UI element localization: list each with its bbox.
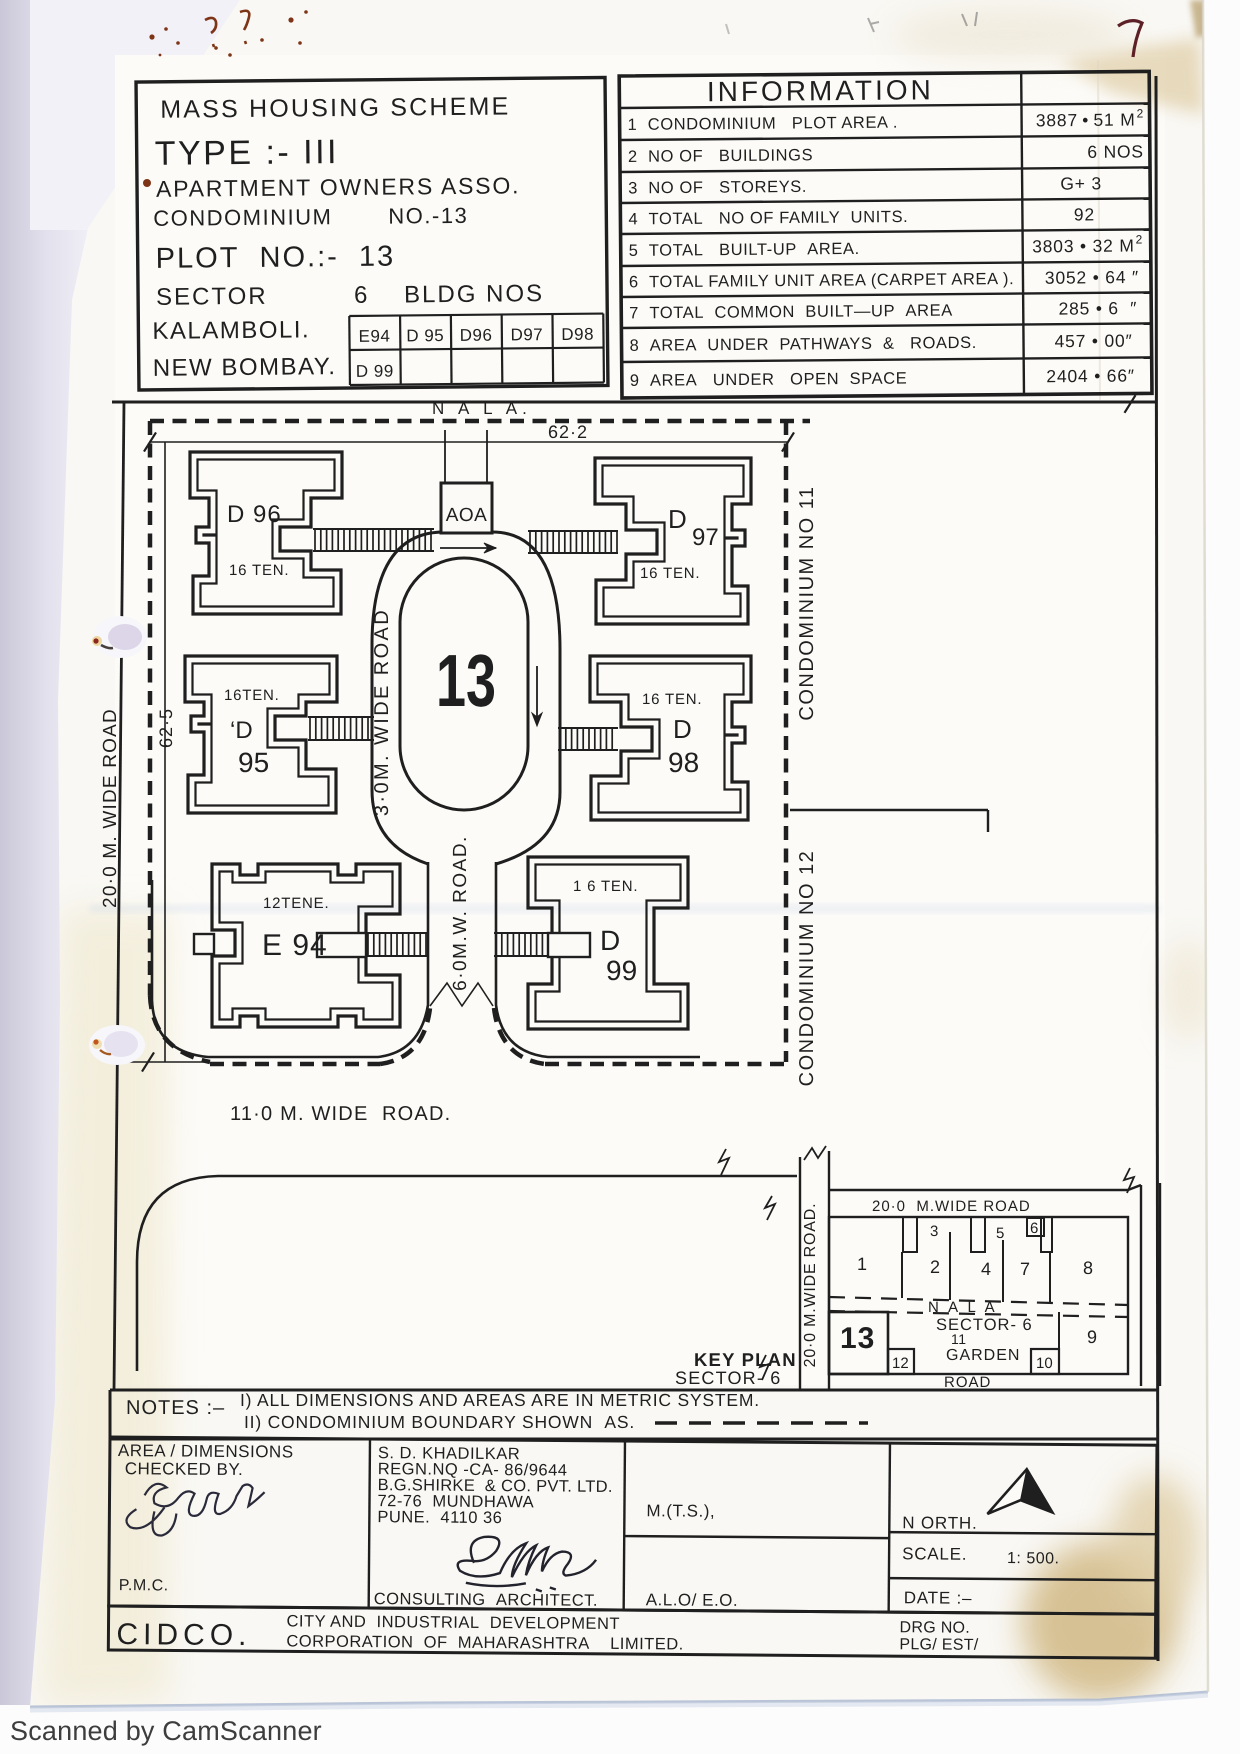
svg-text:D: D bbox=[673, 714, 692, 744]
svg-text:GARDEN: GARDEN bbox=[946, 1347, 1020, 1364]
svg-text:CIDCO.: CIDCO. bbox=[116, 1618, 251, 1652]
svg-text:SCALE.: SCALE. bbox=[902, 1544, 967, 1564]
svg-text:D 95: D 95 bbox=[406, 326, 444, 345]
svg-text:285 • 6 ″: 285 • 6 ″ bbox=[1058, 298, 1137, 319]
svg-text:KEY PLAN: KEY PLAN bbox=[694, 1349, 797, 1370]
svg-text:E 94: E 94 bbox=[262, 929, 328, 962]
svg-text:2404 • 66″: 2404 • 66″ bbox=[1046, 366, 1135, 387]
svg-text:CITY AND INDUSTRIAL DEVELOPM: CITY AND INDUSTRIAL DEVELOPMENT bbox=[286, 1612, 620, 1633]
svg-text:3 NO OF STOREYS.: 3 NO OF STOREYS. bbox=[628, 178, 807, 198]
svg-text:D97: D97 bbox=[510, 325, 543, 344]
svg-text:DATE :–: DATE :– bbox=[904, 1588, 973, 1608]
svg-text:PLG/ EST/: PLG/ EST/ bbox=[899, 1636, 979, 1654]
svg-text:N A L A.: N A L A. bbox=[432, 399, 532, 418]
svg-text:20·0 M.WIDE ROAD: 20·0 M.WIDE ROAD bbox=[872, 1198, 1031, 1215]
svg-text:D 96: D 96 bbox=[227, 501, 282, 528]
svg-text:AOA: AOA bbox=[446, 505, 488, 526]
svg-text:8 AREA UNDER PATHWAYS &: 8 AREA UNDER PATHWAYS & ROADS. bbox=[629, 334, 977, 355]
svg-text:CORPORATION OF MAHARASHTRA: CORPORATION OF MAHARASHTRA LIMITED. bbox=[286, 1632, 684, 1653]
svg-text:92: 92 bbox=[1074, 204, 1095, 224]
svg-text:8: 8 bbox=[1083, 1258, 1093, 1278]
svg-text:3803 • 32 M: 3803 • 32 M bbox=[1032, 236, 1135, 257]
svg-text:16TEN.: 16TEN. bbox=[224, 687, 280, 704]
svg-text:6 TOTAL FAMILY UNIT AREA (CAR: 6 TOTAL FAMILY UNIT AREA (CARPET AREA ). bbox=[629, 270, 1014, 291]
svg-text:20·0 M.WIDE ROAD.: 20·0 M.WIDE ROAD. bbox=[802, 1203, 819, 1368]
svg-text:1: 500.: 1: 500. bbox=[1007, 1550, 1060, 1567]
svg-text:6: 6 bbox=[1030, 1220, 1038, 1237]
svg-text:5: 5 bbox=[996, 1225, 1004, 1242]
svg-text:7: 7 bbox=[1020, 1259, 1030, 1279]
svg-text:4 TOTAL NO OF FAMILY UNITS: 4 TOTAL NO OF FAMILY UNITS. bbox=[628, 208, 908, 228]
svg-text:PUNE. 4110 36: PUNE. 4110 36 bbox=[377, 1508, 502, 1527]
svg-text:3887 • 51 M: 3887 • 51 M bbox=[1036, 110, 1136, 131]
svg-text:KALAMBOLI.: KALAMBOLI. bbox=[152, 316, 310, 345]
svg-text:D96: D96 bbox=[460, 326, 493, 345]
svg-text:3052 • 64 ″: 3052 • 64 ″ bbox=[1045, 267, 1139, 288]
svg-text:2: 2 bbox=[1136, 232, 1143, 246]
svg-text:D: D bbox=[600, 925, 620, 956]
svg-text:62·2: 62·2 bbox=[548, 422, 588, 442]
svg-text:1 6 TEN.: 1 6 TEN. bbox=[573, 878, 638, 895]
svg-text:6 NOS: 6 NOS bbox=[1087, 141, 1144, 161]
svg-text:MASS HOUSING SCHEME: MASS HOUSING SCHEME bbox=[160, 92, 510, 123]
svg-text:‘D: ‘D bbox=[230, 717, 253, 744]
svg-text:12: 12 bbox=[892, 1355, 909, 1372]
svg-text:9: 9 bbox=[1087, 1327, 1097, 1347]
svg-text:11: 11 bbox=[951, 1331, 967, 1347]
svg-text:CONDOMINIUM: CONDOMINIUM bbox=[153, 204, 332, 231]
svg-text:E94: E94 bbox=[359, 327, 391, 346]
svg-text:DRG NO.: DRG NO. bbox=[899, 1619, 970, 1637]
svg-text:16 TEN.: 16 TEN. bbox=[229, 562, 289, 579]
svg-text:Scanned by CamScanner: Scanned by CamScanner bbox=[10, 1716, 322, 1746]
svg-text:A.L.O/ E.O.: A.L.O/ E.O. bbox=[646, 1590, 739, 1610]
svg-text:3·0M. WIDE ROAD: 3·0M. WIDE ROAD bbox=[371, 608, 393, 816]
svg-text:10: 10 bbox=[1036, 1355, 1053, 1372]
svg-text:APARTMENT OWNERS ASSO.: APARTMENT OWNERS ASSO. bbox=[156, 172, 520, 201]
svg-text:13: 13 bbox=[840, 1322, 875, 1355]
svg-text:CONDOMINIUM NO 12: CONDOMINIUM NO 12 bbox=[796, 850, 818, 1087]
svg-text:BLDG NOS: BLDG NOS bbox=[404, 280, 544, 308]
svg-text:D 99: D 99 bbox=[356, 362, 394, 381]
svg-text:16 TEN.: 16 TEN. bbox=[642, 691, 702, 708]
svg-text:CHECKED BY.: CHECKED BY. bbox=[125, 1459, 244, 1479]
svg-text:457 • 00″: 457 • 00″ bbox=[1055, 331, 1133, 352]
svg-text:CONDOMINIUM NO 11: CONDOMINIUM NO 11 bbox=[796, 485, 818, 720]
svg-text:PLOT NO.:- 13: PLOT NO.:- 13 bbox=[156, 241, 396, 275]
svg-text:NEW BOMBAY.: NEW BOMBAY. bbox=[153, 353, 337, 382]
svg-text:N ORTH.: N ORTH. bbox=[902, 1513, 977, 1533]
svg-text:62·5: 62·5 bbox=[156, 708, 176, 748]
svg-text:6: 6 bbox=[354, 282, 370, 309]
svg-text:12TENE.: 12TENE. bbox=[263, 895, 329, 912]
svg-text:5 TOTAL BUILT-UP AREA.: 5 TOTAL BUILT-UP AREA. bbox=[629, 240, 860, 260]
svg-text:7 TOTAL COMMON BUILT—UP AR: 7 TOTAL COMMON BUILT—UP AREA bbox=[629, 302, 953, 323]
svg-text:M.(T.S.),: M.(T.S.), bbox=[646, 1501, 715, 1521]
svg-text:ROAD: ROAD bbox=[944, 1374, 991, 1391]
svg-text:98: 98 bbox=[668, 747, 699, 778]
svg-text:20·0 M. WIDE ROAD: 20·0 M. WIDE ROAD bbox=[100, 708, 121, 908]
svg-text:9 AREA UNDER OPEN SPACE: 9 AREA UNDER OPEN SPACE bbox=[630, 370, 908, 390]
svg-text:2: 2 bbox=[1136, 106, 1143, 120]
svg-text:N A L A: N A L A bbox=[928, 1299, 998, 1316]
svg-text:99: 99 bbox=[606, 955, 637, 986]
svg-text:2 NO OF BUILDINGS: 2 NO OF BUILDINGS bbox=[628, 146, 813, 166]
svg-text:97: 97 bbox=[692, 524, 719, 551]
svg-text:13: 13 bbox=[436, 639, 496, 722]
svg-text:SECTOR: SECTOR bbox=[156, 283, 268, 311]
svg-text:1 CONDOMINIUM PLOT AREA .: 1 CONDOMINIUM PLOT AREA . bbox=[628, 114, 899, 134]
svg-text:D98: D98 bbox=[561, 325, 594, 344]
svg-text:2: 2 bbox=[930, 1257, 940, 1277]
svg-text:1: 1 bbox=[857, 1254, 867, 1274]
svg-text:TYPE :- III: TYPE :- III bbox=[155, 133, 340, 173]
svg-text:G+ 3: G+ 3 bbox=[1060, 173, 1102, 193]
svg-text:I) ALL DIMENSIONS AND AREAS AR: I) ALL DIMENSIONS AND AREAS ARE IN METRI… bbox=[240, 1390, 760, 1410]
svg-text:II) CONDOMINIUM BOUNDARY SHOWN: II) CONDOMINIUM BOUNDARY SHOWN AS. bbox=[244, 1412, 635, 1432]
svg-text:NOTES :–: NOTES :– bbox=[126, 1397, 225, 1419]
svg-text:6·0M.W. ROAD.: 6·0M.W. ROAD. bbox=[450, 835, 471, 991]
svg-text:P.M.C.: P.M.C. bbox=[119, 1577, 169, 1594]
svg-text:INFORMATION: INFORMATION bbox=[707, 74, 934, 107]
svg-text:CONSULTING ARCHITECT.: CONSULTING ARCHITECT. bbox=[374, 1590, 598, 1610]
svg-text:4: 4 bbox=[981, 1259, 991, 1279]
svg-text:3: 3 bbox=[930, 1223, 938, 1240]
svg-text:16 TEN.: 16 TEN. bbox=[640, 565, 700, 582]
svg-text:95: 95 bbox=[238, 747, 269, 778]
svg-text:11·0 M. WIDE ROAD.: 11·0 M. WIDE ROAD. bbox=[230, 1103, 451, 1125]
svg-text:NO.-13: NO.-13 bbox=[388, 203, 468, 229]
svg-text:D: D bbox=[668, 504, 687, 534]
